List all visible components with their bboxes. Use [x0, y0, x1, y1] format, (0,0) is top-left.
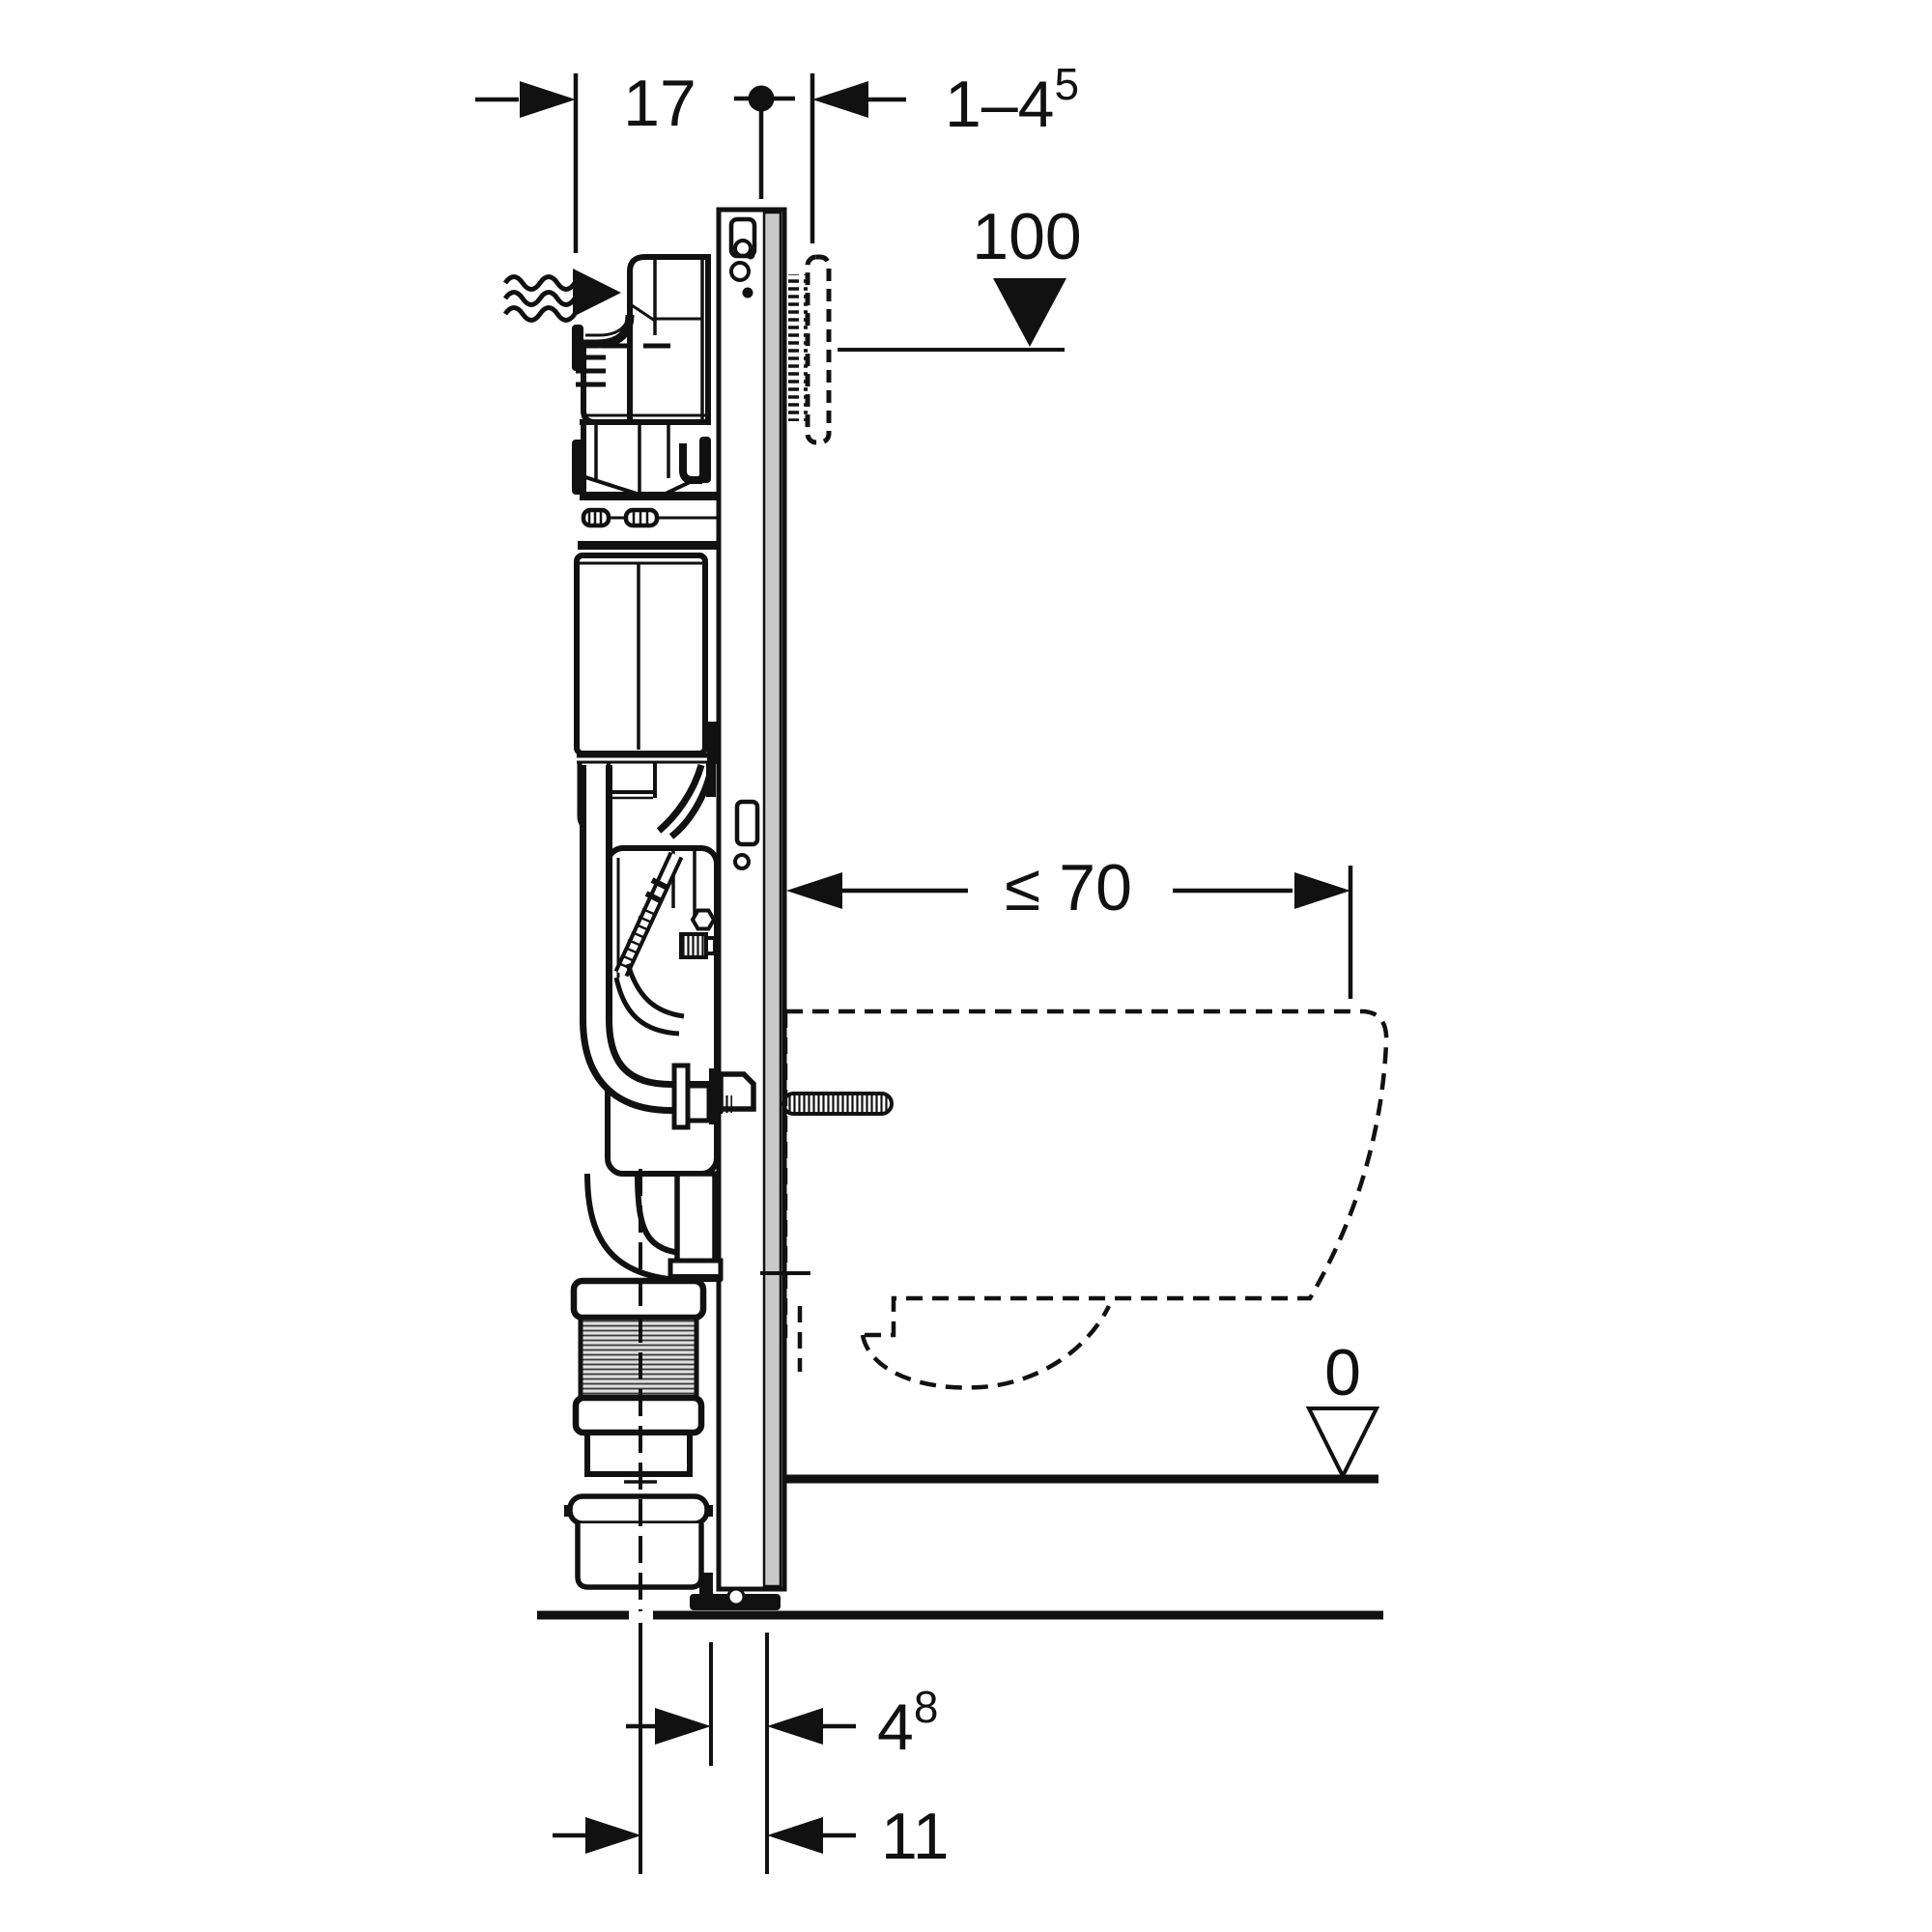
hex-nut-icon	[693, 911, 714, 929]
rail-dot	[743, 288, 753, 298]
label-frame-depth: 17	[623, 67, 696, 140]
rail-dot	[747, 251, 755, 260]
dimension-arrow-icon	[655, 1708, 711, 1745]
label-floor-level: 0	[1324, 1336, 1361, 1409]
floor-level-marker-triangle-icon	[1309, 1408, 1377, 1476]
pan-bowl-underside	[863, 1306, 1109, 1388]
label-max-depth: ≤ 70	[1005, 851, 1132, 924]
dim-max-depth: ≤ 70	[786, 851, 1350, 999]
label-actuation-height: 100	[972, 200, 1081, 273]
cistern-cap	[630, 257, 708, 422]
floor-level-marker: 0	[1309, 1336, 1377, 1476]
label-drain-offset: 11	[881, 1800, 950, 1873]
wc-pan-outline	[785, 1011, 1386, 1388]
band-bottom	[578, 541, 717, 550]
cap-nub	[706, 1505, 713, 1517]
threaded-stub	[681, 934, 706, 957]
dimension-arrow-icon	[585, 1817, 641, 1854]
lower-tank	[577, 555, 705, 753]
concealed-cistern	[572, 257, 717, 837]
wall-finish	[784, 257, 829, 442]
drop-pipe	[677, 1174, 715, 1263]
dim-bottom: 48 11	[553, 1623, 950, 1874]
cap-nub	[564, 1505, 571, 1517]
band-top	[580, 492, 717, 500]
dimension-arrow-icon	[767, 1708, 823, 1745]
dimension-arrow-icon	[812, 81, 868, 118]
foot-bolt-icon	[728, 1589, 744, 1605]
left-clip	[572, 440, 584, 495]
shoulder-seal	[583, 315, 630, 344]
overflow-bar	[699, 437, 711, 483]
label-front-offset: 48	[877, 1682, 938, 1764]
height-marker-filled-triangle-icon	[993, 278, 1066, 347]
dimension-arrow-icon	[1294, 872, 1350, 909]
dimension-arrow-icon	[520, 81, 576, 118]
label-plate-distance: 1–45	[945, 59, 1079, 141]
pan-body	[786, 1011, 1386, 1335]
height-marker-100: 100	[838, 200, 1082, 350]
threaded-rod	[783, 1094, 892, 1114]
installation-diagram-page: 17 1–45 100 ≤ 70 0 48	[0, 0, 1932, 1932]
cistern-cap-chamfer	[632, 305, 655, 321]
rail-gap-bar	[706, 762, 716, 797]
water-supply-icon	[505, 269, 621, 321]
dimension-arrow-icon	[767, 1817, 823, 1854]
rail-hole-icon	[731, 263, 749, 280]
actuator-plate-dashed	[808, 257, 829, 442]
dimension-arrow-icon	[786, 872, 842, 909]
rail-slot-mid	[737, 802, 757, 844]
stub-nub	[706, 938, 715, 953]
bend-blade	[671, 765, 712, 837]
supply-arrow	[573, 269, 621, 317]
bend-blade	[659, 765, 701, 831]
rail-front-profile	[764, 213, 781, 1586]
outlet-body	[688, 1086, 709, 1121]
diagram-svg: 17 1–45 100 ≤ 70 0 48	[0, 0, 1932, 1932]
outlet-threads	[723, 1095, 732, 1113]
